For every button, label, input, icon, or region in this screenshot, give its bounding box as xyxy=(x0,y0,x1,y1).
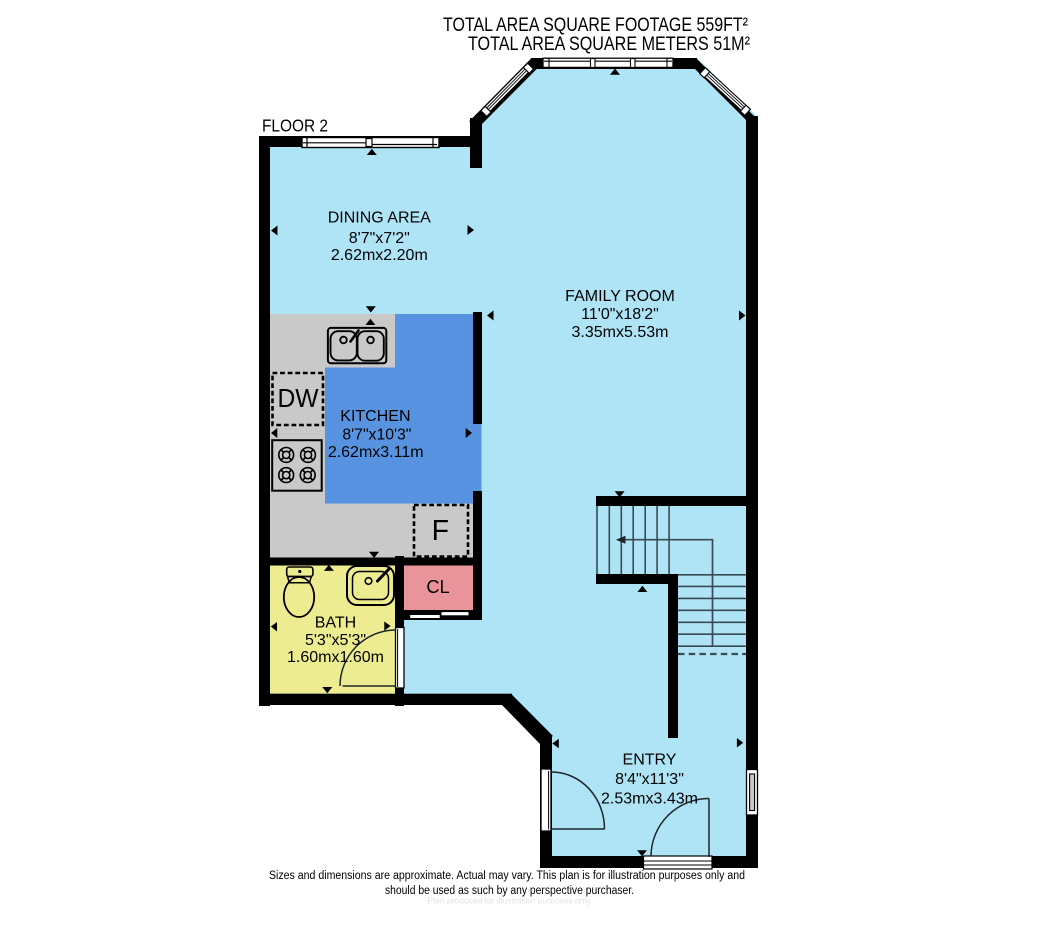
svg-text:DW: DW xyxy=(278,383,319,413)
svg-text:FLOOR 2: FLOOR 2 xyxy=(262,116,328,136)
svg-text:Plan produced for illustration: Plan produced for illustration purposes … xyxy=(427,896,591,906)
svg-text:3.35mx5.53m: 3.35mx5.53m xyxy=(572,324,669,341)
svg-text:KITCHEN: KITCHEN xyxy=(340,408,410,425)
svg-text:TOTAL AREA SQUARE METERS 51M²: TOTAL AREA SQUARE METERS 51M² xyxy=(468,33,750,55)
svg-text:8'7"x10'3": 8'7"x10'3" xyxy=(342,427,411,444)
svg-text:FAMILY ROOM: FAMILY ROOM xyxy=(565,288,675,305)
svg-text:CL: CL xyxy=(426,576,449,597)
svg-text:11'0"x18'2": 11'0"x18'2" xyxy=(581,306,659,323)
svg-text:2.62mx2.20m: 2.62mx2.20m xyxy=(331,247,428,264)
svg-text:ENTRY: ENTRY xyxy=(623,752,677,769)
svg-text:8'7"x7'2": 8'7"x7'2" xyxy=(349,230,410,247)
svg-text:Sizes and dimensions are appro: Sizes and dimensions are approximate. Ac… xyxy=(269,870,745,882)
svg-text:DINING AREA: DINING AREA xyxy=(328,210,431,227)
svg-text:5'3"x5'3": 5'3"x5'3" xyxy=(305,632,366,649)
svg-text:F: F xyxy=(432,515,449,547)
svg-text:1.60mx1.60m: 1.60mx1.60m xyxy=(287,649,384,666)
svg-text:2.53mx3.43m: 2.53mx3.43m xyxy=(601,791,698,808)
svg-text:BATH: BATH xyxy=(315,615,356,632)
svg-text:8'4"x11'3": 8'4"x11'3" xyxy=(615,771,684,788)
svg-text:2.62mx3.11m: 2.62mx3.11m xyxy=(328,444,424,461)
